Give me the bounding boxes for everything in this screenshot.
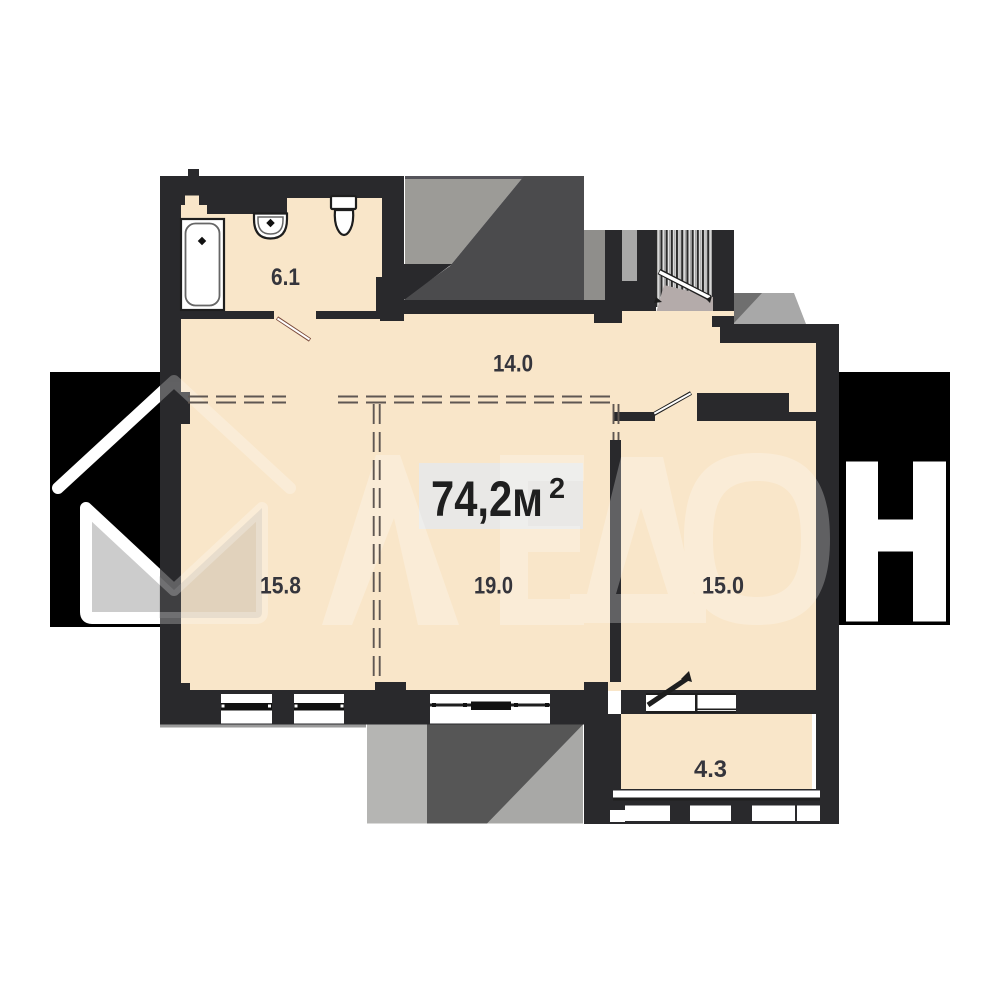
svg-text:4.3: 4.3 [694, 756, 727, 783]
svg-text:74,2м: 74,2м [431, 471, 543, 527]
svg-text:2: 2 [549, 473, 565, 505]
svg-text:6.1: 6.1 [271, 264, 300, 291]
svg-text:15.8: 15.8 [260, 573, 301, 600]
svg-text:15.0: 15.0 [702, 573, 744, 600]
svg-text:14.0: 14.0 [493, 351, 533, 378]
svg-text:19.0: 19.0 [474, 573, 513, 600]
